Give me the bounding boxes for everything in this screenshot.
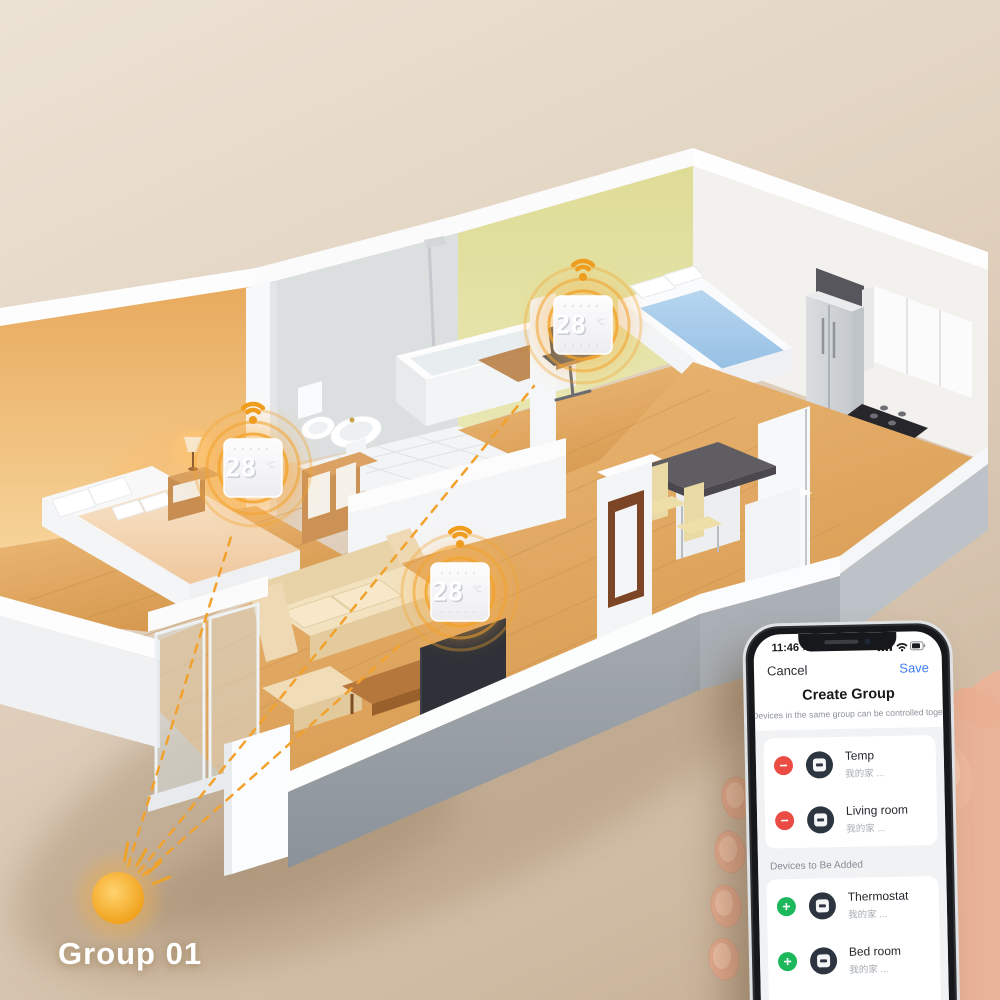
remove-device-button[interactable]: −: [774, 756, 793, 775]
svg-text:℃: ℃: [265, 460, 275, 470]
svg-text:℃: ℃: [472, 584, 482, 594]
device-name: Thermostat: [848, 889, 909, 904]
device-home: 我的家 ...: [846, 820, 908, 835]
group-devices-card: − Temp 我的家 ... − Living room 我的家 ...: [763, 735, 937, 849]
speaker: [824, 640, 858, 645]
nav-bar: Cancel Save: [754, 657, 942, 685]
device-row[interactable]: + Bed room 我的家 ...: [768, 931, 941, 990]
device-row[interactable]: + Thermostat 我的家 ...: [766, 876, 939, 935]
phone-mockup: 11:46: [700, 616, 1000, 1000]
svg-text:28: 28: [225, 454, 256, 484]
phone-notch: [798, 632, 896, 652]
svg-text:28: 28: [555, 311, 586, 341]
phone-screen: 11:46: [753, 631, 950, 1000]
cancel-button[interactable]: Cancel: [767, 663, 808, 679]
note-row: i Devices in the same group can be contr…: [755, 706, 943, 721]
note-text: Devices in the same group can be control…: [753, 706, 950, 720]
svg-text:28: 28: [432, 578, 463, 608]
thermostat-device-icon: [806, 751, 834, 779]
camera: [864, 638, 870, 644]
status-time: 11:46: [771, 642, 799, 655]
device-row[interactable]: − Living room 我的家 ...: [765, 790, 938, 849]
section-label: Devices to Be Added: [770, 858, 934, 872]
svg-text:℃: ℃: [595, 317, 605, 327]
remove-device-button[interactable]: −: [775, 811, 794, 830]
save-button[interactable]: Save: [899, 660, 929, 676]
device-home: 我的家 ...: [849, 961, 901, 976]
available-devices-card: + Thermostat 我的家 ... + Bed room 我的家 ...: [766, 876, 941, 1000]
device-home: 我的家 ...: [845, 765, 884, 780]
add-device-button[interactable]: +: [778, 952, 797, 971]
device-row[interactable]: + Dining room 我的家 ...: [769, 986, 942, 1000]
thermostat-device-icon: [810, 947, 838, 975]
wifi-icon: [897, 644, 906, 652]
device-list: − Temp 我的家 ... − Living room 我的家 ...: [755, 727, 950, 1000]
battery-icon: [910, 642, 925, 650]
device-name: Bed room: [849, 944, 901, 959]
device-row[interactable]: − Temp 我的家 ...: [763, 735, 936, 794]
add-device-button[interactable]: +: [777, 897, 796, 916]
device-name: Living room: [846, 803, 908, 818]
page-title: Create Group: [754, 685, 942, 705]
thermostat-device-icon: [807, 806, 835, 834]
device-name: Temp: [845, 748, 884, 763]
smartphone: 11:46: [742, 620, 962, 1000]
group-label: Group 01: [58, 936, 202, 972]
thermostat-device-icon: [809, 892, 837, 920]
device-home: 我的家 ...: [848, 906, 909, 921]
